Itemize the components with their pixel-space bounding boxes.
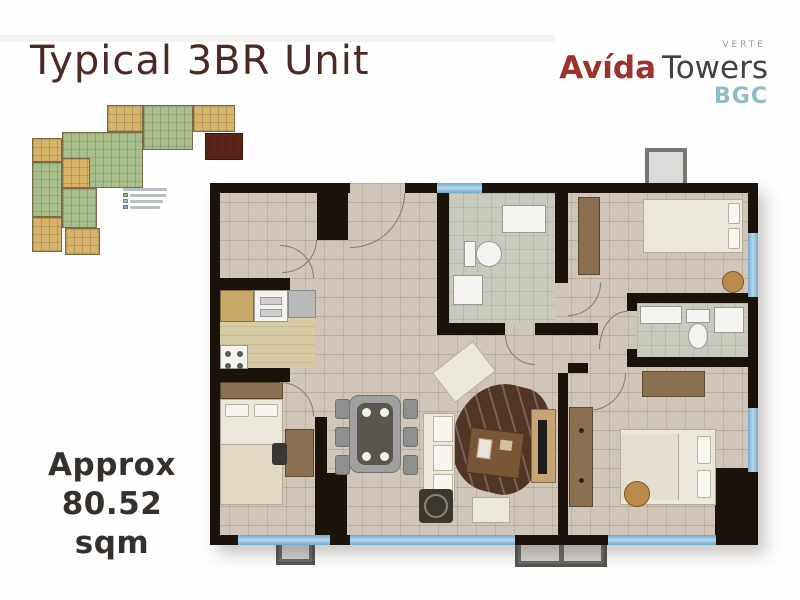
key-plan-block	[62, 188, 97, 228]
wall	[568, 363, 588, 373]
toilet	[688, 323, 708, 349]
closet-bedroom3	[320, 473, 347, 535]
key-plan-block	[32, 162, 62, 217]
floor-plan	[210, 148, 758, 568]
pillow	[697, 436, 711, 464]
wall	[568, 323, 598, 335]
toilet	[476, 241, 502, 267]
legend-text-smudge	[130, 206, 160, 209]
legend-title-row	[123, 187, 183, 191]
key-plan-legend	[123, 187, 183, 211]
vanity-sink	[640, 306, 682, 324]
dining-chair	[335, 427, 350, 447]
door-arc	[568, 283, 601, 316]
kitchen-cabinet	[220, 290, 254, 322]
wall	[627, 357, 748, 367]
key-plan-block	[143, 105, 193, 150]
wall	[437, 183, 449, 323]
brand-location: BGC	[558, 86, 768, 108]
window-strip	[748, 408, 758, 472]
window-strip	[238, 535, 330, 545]
dining-chair	[403, 427, 418, 447]
pillow	[697, 470, 711, 498]
door-arc	[280, 382, 314, 416]
shower	[714, 307, 744, 333]
dresser	[642, 371, 705, 397]
key-plan-block	[32, 217, 62, 252]
kitchen-sink	[254, 290, 288, 322]
door-arc-entry	[350, 193, 405, 248]
wall	[535, 323, 568, 335]
desk-chair	[272, 443, 287, 465]
wall	[220, 278, 290, 290]
dining-chair	[403, 455, 418, 475]
pillow	[225, 404, 249, 417]
legend-text-smudge	[123, 188, 167, 191]
dining-table	[349, 395, 401, 473]
legend-row	[123, 199, 183, 203]
unit-plan-body	[210, 183, 758, 545]
key-plan-block	[193, 105, 235, 132]
toilet-tank	[464, 241, 476, 267]
window-strip	[608, 535, 716, 545]
wall	[220, 368, 290, 382]
dining-chair	[403, 399, 418, 419]
dining-chair	[335, 455, 350, 475]
brand-name: Avída	[559, 50, 656, 86]
toilet-tank	[686, 309, 710, 323]
key-plan-block	[62, 158, 90, 188]
wall	[627, 293, 637, 311]
dining-chair	[335, 399, 350, 419]
wall	[437, 323, 505, 335]
key-plan-block	[32, 138, 62, 162]
wall-entry-pillar	[317, 183, 348, 240]
wardrobe-bedroom1	[578, 197, 600, 275]
pillow	[728, 203, 740, 224]
sofa	[423, 413, 455, 501]
door-arc	[588, 373, 626, 411]
area-label-line2: 80.52 sqm	[22, 485, 202, 563]
legend-row	[123, 205, 183, 209]
pillow	[254, 404, 278, 417]
wall	[555, 183, 568, 283]
window-strip	[437, 183, 482, 193]
slide: Typical 3BR Unit VERTE AvídaTowers BGC A…	[0, 0, 800, 600]
pillow	[728, 228, 740, 249]
wardrobe-master	[569, 407, 593, 507]
wall	[558, 373, 568, 535]
shower	[453, 275, 483, 305]
wall	[627, 293, 748, 303]
coffee-table	[465, 427, 524, 479]
legend-row	[123, 193, 183, 197]
window-strip	[748, 233, 758, 297]
area-label-line1: Approx	[22, 446, 202, 485]
bed-bedroom1	[643, 199, 743, 253]
key-plan-block	[65, 228, 100, 255]
wall	[627, 349, 637, 367]
side-table	[722, 271, 744, 293]
legend-swatch	[123, 205, 128, 209]
closet-master	[715, 468, 748, 535]
brand-suffix: Towers	[662, 50, 768, 86]
legend-text-smudge	[130, 194, 166, 197]
brand-sub-label: VERTE	[722, 40, 766, 50]
kitchen-counter	[288, 290, 316, 318]
wall	[210, 183, 220, 545]
brand-logo: VERTE AvídaTowers BGC	[558, 34, 768, 108]
stove	[220, 345, 248, 369]
door-arc	[599, 311, 627, 349]
headboard-bedroom3	[220, 382, 283, 399]
door-arc	[505, 335, 535, 365]
key-plan-block	[107, 105, 143, 132]
vanity-sink	[502, 205, 546, 233]
legend-rows	[123, 193, 183, 209]
legend-swatch	[123, 193, 128, 197]
page-title: Typical 3BR Unit	[30, 38, 370, 84]
desk	[285, 429, 314, 477]
plant	[624, 481, 650, 507]
legend-text-smudge	[130, 200, 163, 203]
window-strip	[350, 535, 515, 545]
bench	[472, 497, 510, 523]
legend-swatch	[123, 199, 128, 203]
tv-console	[531, 409, 556, 483]
tv	[538, 420, 547, 474]
area-label: Approx 80.52 sqm	[22, 446, 202, 562]
planter	[419, 489, 453, 523]
